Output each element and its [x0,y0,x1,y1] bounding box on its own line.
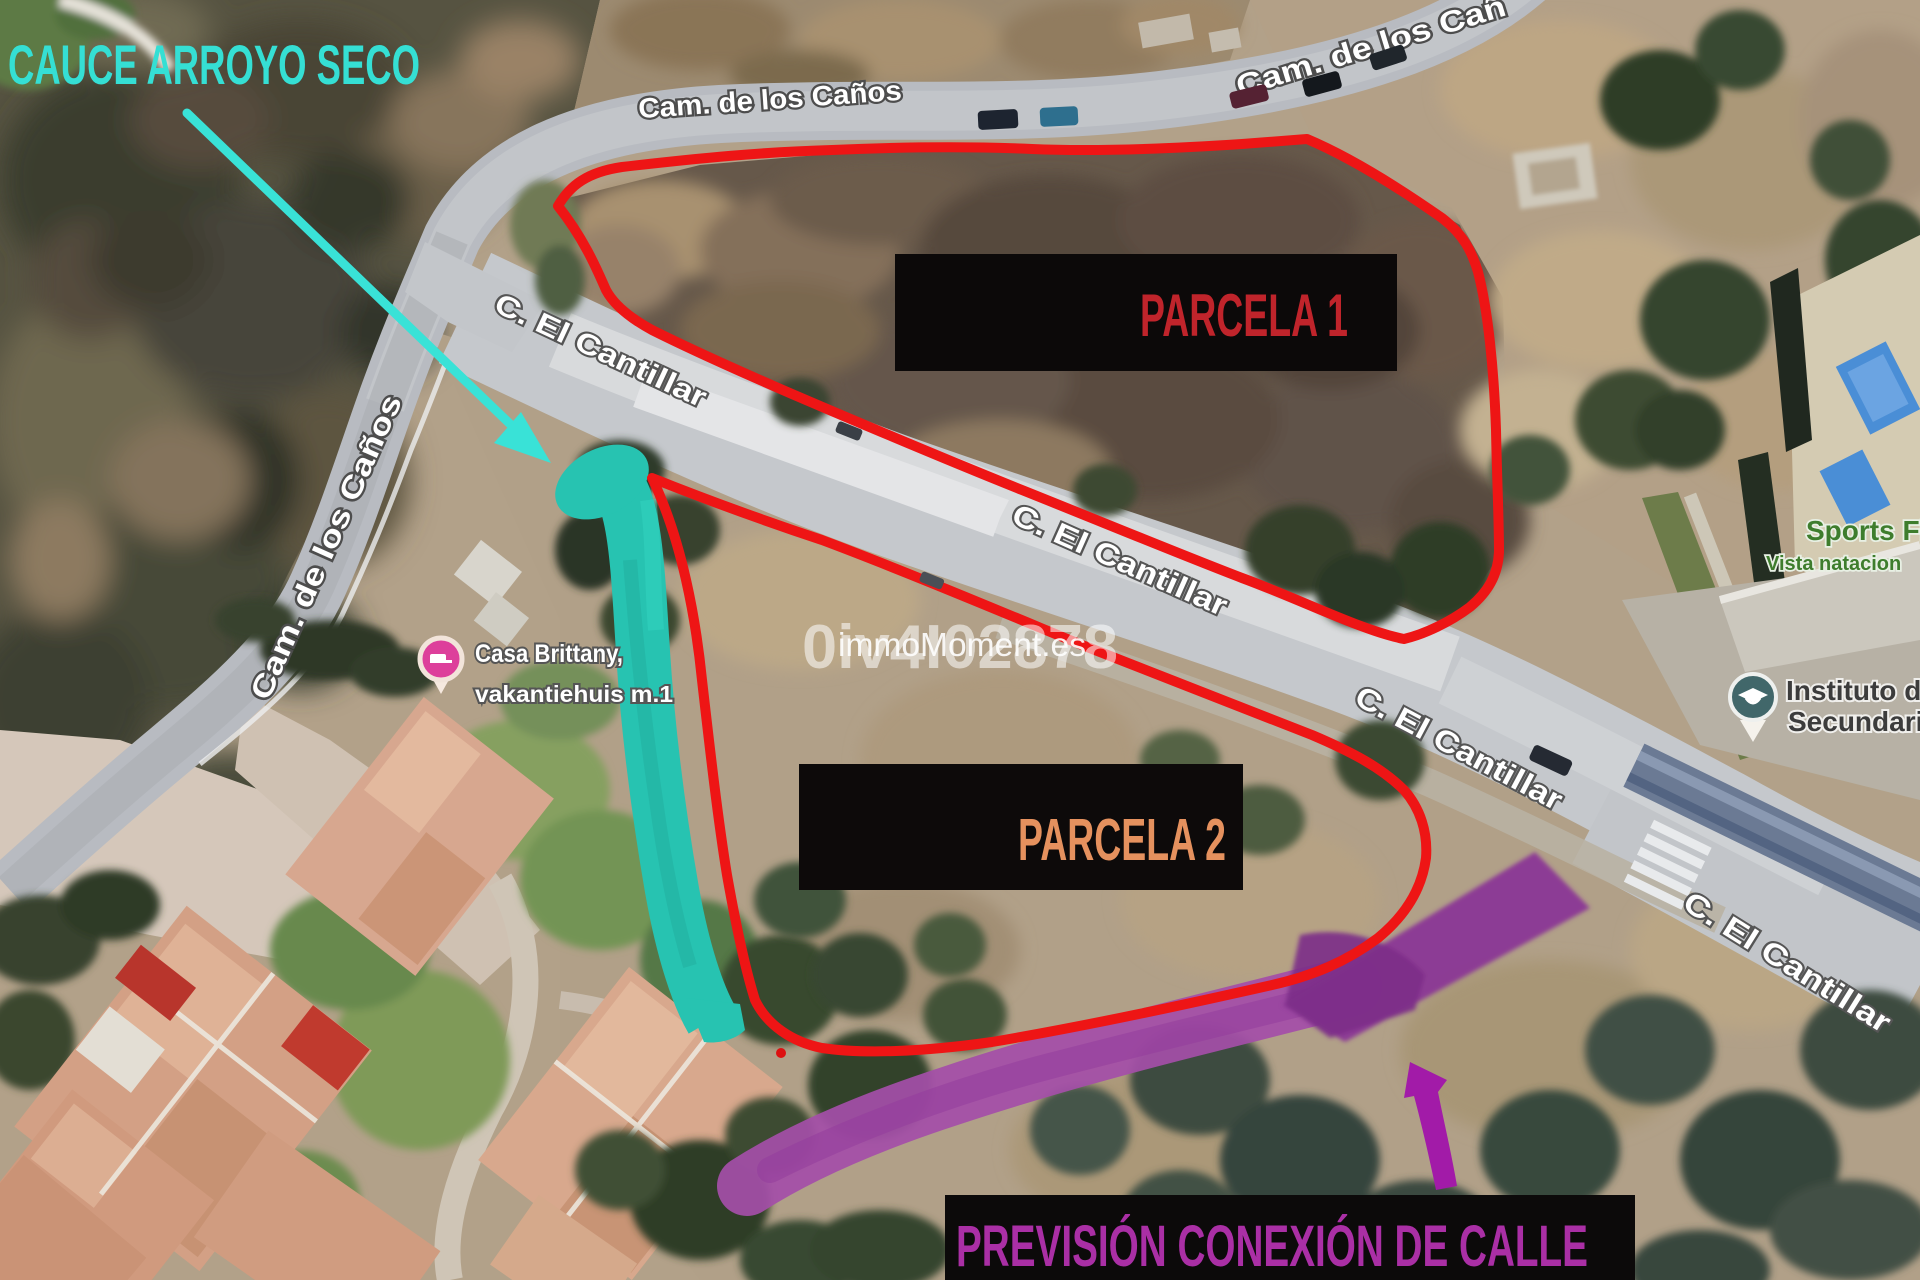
svg-text:Instituto de: Instituto de [1786,675,1920,706]
svg-text:PREVISIÓN CONEXIÓN DE CALLE: PREVISIÓN CONEXIÓN DE CALLE [956,1214,1588,1279]
svg-text:Casa Brittany,: Casa Brittany, [475,640,623,668]
svg-text:Sports Fi: Sports Fi [1806,515,1920,546]
svg-text:PARCELA 2: PARCELA 2 [1018,807,1226,873]
svg-text:Vista natacion: Vista natacion [1766,553,1901,575]
svg-text:CAUCE ARROYO SECO: CAUCE ARROYO SECO [8,33,420,96]
svg-text:PARCELA 1: PARCELA 1 [1140,282,1348,349]
svg-text:Secundaria: Secundaria [1788,706,1920,737]
svg-text:vakantiehuis m.1: vakantiehuis m.1 [475,681,673,707]
svg-text:immoMoment.es: immoMoment.es [838,626,1086,663]
